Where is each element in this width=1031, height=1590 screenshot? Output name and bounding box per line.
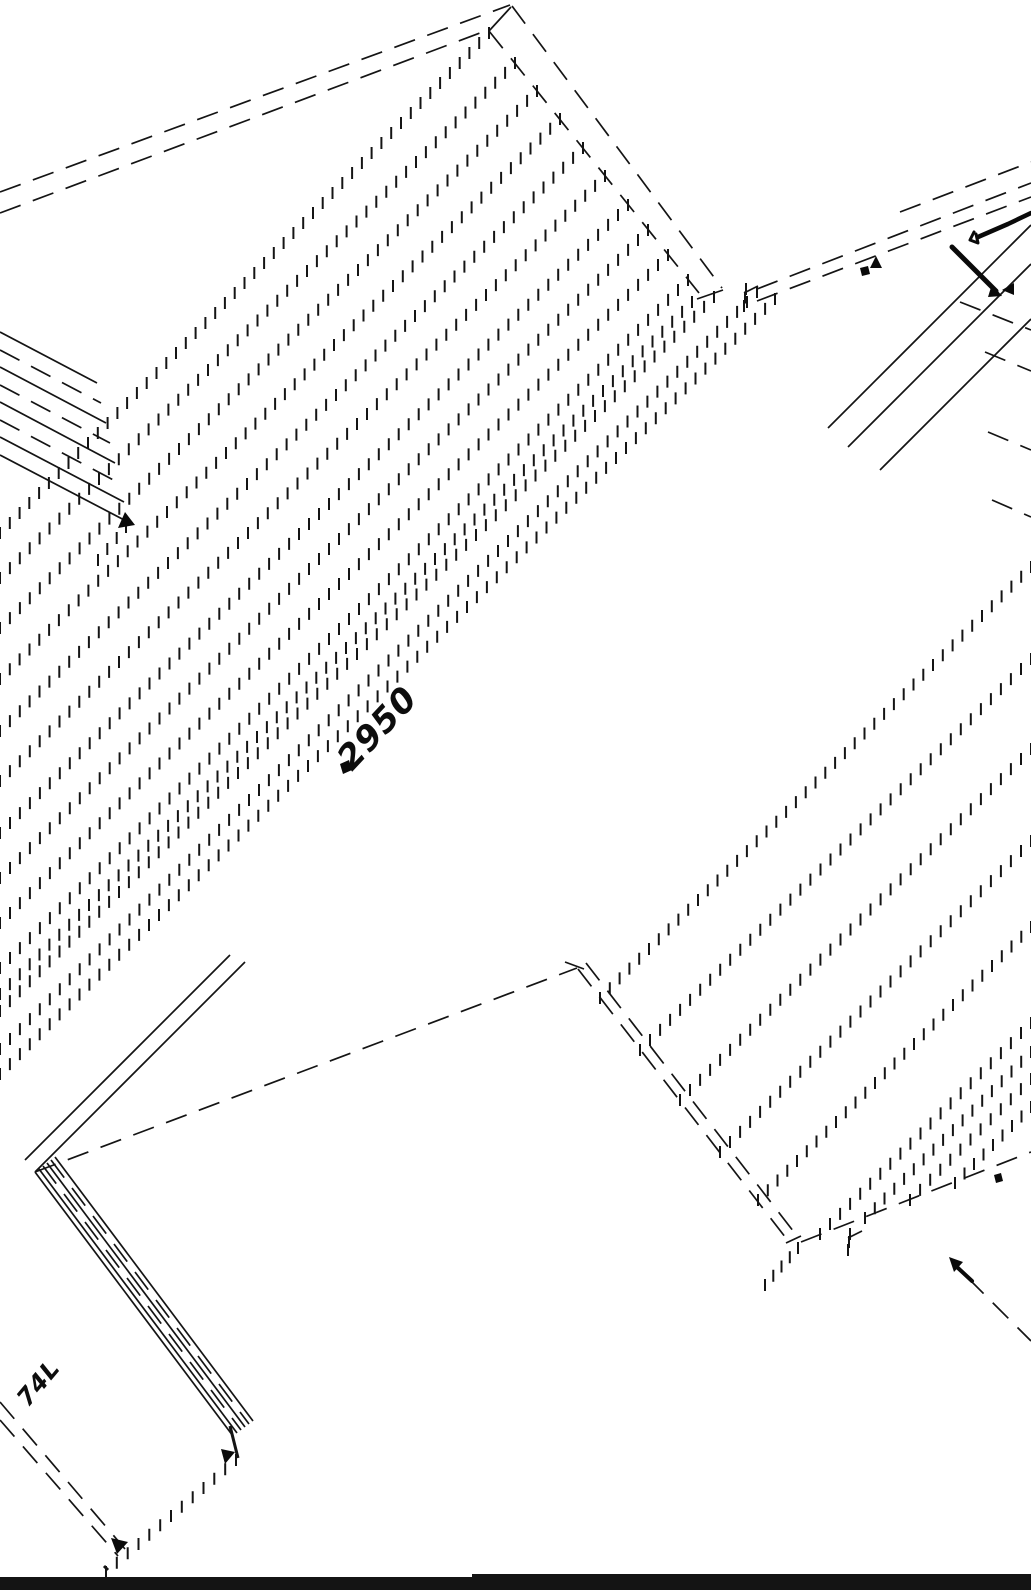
hidden-edge-tick-line <box>744 283 746 312</box>
edge-solid-line <box>39 1169 237 1433</box>
hidden-edge-dashed-line <box>992 500 1031 517</box>
hidden-edge-tick-line <box>106 1454 236 1578</box>
hidden-edge-tick-line <box>0 286 757 1055</box>
hidden-edge-tick-line <box>720 835 1031 1158</box>
hidden-edge-dashed-line <box>0 1420 118 1556</box>
arrowhead-mark <box>221 1449 235 1464</box>
hidden-edge-dashed-line <box>900 162 1031 212</box>
hidden-edge-tick-line <box>848 1228 850 1256</box>
hidden-edge-dashed-line <box>0 5 510 192</box>
edge-solid-line <box>565 962 584 969</box>
arrowhead-mark <box>994 1173 1003 1183</box>
title-block-edge-bar <box>0 1574 1031 1590</box>
hidden-edge-dashed-line <box>586 963 797 1236</box>
pen-stroke <box>952 247 996 291</box>
hidden-edge-tick-line <box>955 1101 1031 1189</box>
hidden-edge-tick-line <box>0 291 714 1017</box>
arrowhead-mark <box>118 512 135 528</box>
sheet-border-bar <box>0 1577 472 1590</box>
hidden-edge-tick-line <box>820 1017 1031 1240</box>
hidden-edge-dashed-line <box>35 968 577 1172</box>
edge-solid-line <box>880 319 1031 470</box>
pen-stroke <box>970 232 978 243</box>
handwritten-dimension-corner: 74L <box>11 1354 66 1412</box>
hidden-edge-dashed-line <box>0 30 488 213</box>
edge-solid-line <box>47 1163 245 1427</box>
hidden-edge-dashed-line <box>968 1278 1031 1341</box>
edge-solid-line <box>489 7 511 31</box>
hidden-edge-tick-line <box>600 561 1031 1004</box>
drawing-sheet: 2950 74L <box>0 0 1031 1590</box>
edge-solid-line <box>697 290 723 299</box>
hidden-edge-tick-line <box>98 521 126 566</box>
hidden-edge-tick-line <box>865 1046 1031 1224</box>
wireframe-lines <box>0 5 1031 1578</box>
edge-solid-line <box>0 437 124 502</box>
hidden-edge-dashed-line <box>960 302 1031 330</box>
sheet-border-bar <box>472 1574 1031 1590</box>
hidden-edge-dashed-line <box>0 385 110 443</box>
arrowhead-mark <box>860 266 870 276</box>
edge-solid-line <box>0 367 106 423</box>
hidden-edge-dashed-line <box>757 183 1031 289</box>
edge-solid-line <box>25 955 230 1160</box>
edge-solid-line <box>55 1157 253 1421</box>
hidden-edge-tick-line <box>0 274 688 974</box>
edge-solid-line <box>35 962 245 1172</box>
hidden-edge-dashed-line <box>0 1402 125 1549</box>
edge-solid-line <box>848 264 1031 447</box>
axonometric-wireframe-drawing: 2950 74L <box>0 0 1031 1590</box>
hidden-edge-dashed-line <box>985 352 1031 371</box>
hidden-edge-dashed-line <box>51 1160 249 1424</box>
hidden-edge-tick-line <box>0 57 515 584</box>
edge-solid-line <box>35 1172 233 1436</box>
arrowhead-mark <box>111 1538 128 1554</box>
hidden-edge-dashed-line <box>512 6 722 288</box>
hidden-edge-tick-line <box>0 293 775 1080</box>
pen-stroke <box>958 1268 972 1281</box>
hidden-edge-dashed-line <box>43 1166 241 1430</box>
hidden-edge-tick-line <box>640 653 1031 1056</box>
hidden-edge-dashed-line <box>988 432 1031 450</box>
hidden-edge-tick-line <box>910 1073 1031 1206</box>
edge-solid-line <box>786 1236 801 1243</box>
edge-solid-line <box>828 225 1031 428</box>
arrowhead-mark <box>1002 283 1014 295</box>
hidden-edge-tick-line <box>765 1242 798 1291</box>
hidden-edge-tick-line <box>680 743 1031 1106</box>
hidden-edge-tick-line <box>0 27 489 539</box>
hidden-edge-tick-line <box>0 199 628 839</box>
hidden-edge-tick-line <box>0 296 692 1000</box>
hidden-edge-dashed-line <box>801 1152 1031 1242</box>
